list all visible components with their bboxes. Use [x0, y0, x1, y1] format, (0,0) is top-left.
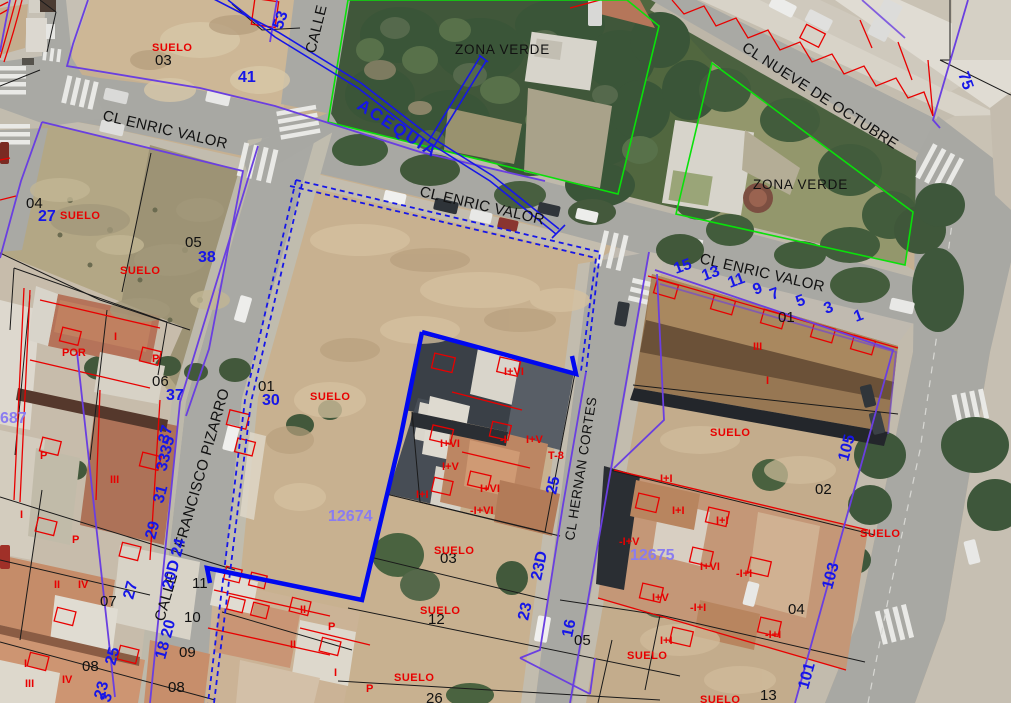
svg-text:-I+I: -I+I — [765, 629, 781, 641]
svg-text:SUELO: SUELO — [434, 545, 474, 557]
svg-text:SUELO: SUELO — [394, 672, 434, 684]
svg-text:ZONA VERDE: ZONA VERDE — [455, 42, 550, 57]
svg-text:I: I — [114, 331, 117, 343]
svg-text:I: I — [24, 658, 27, 670]
svg-text:16: 16 — [559, 618, 579, 639]
svg-text:I+VI: I+VI — [440, 438, 460, 450]
svg-text:SUELO: SUELO — [310, 391, 350, 403]
svg-text:ZONA VERDE: ZONA VERDE — [753, 177, 848, 192]
svg-text:III: III — [110, 474, 119, 486]
svg-text:13: 13 — [760, 687, 777, 703]
svg-text:IV: IV — [78, 579, 89, 591]
svg-text:37: 37 — [166, 387, 184, 404]
svg-text:II: II — [300, 604, 306, 616]
svg-text:P: P — [72, 534, 79, 546]
svg-text:POR: POR — [62, 347, 86, 359]
svg-text:II: II — [290, 639, 296, 651]
svg-text:27: 27 — [38, 208, 56, 225]
svg-text:SUELO: SUELO — [420, 605, 460, 617]
svg-text:T-8: T-8 — [548, 450, 564, 462]
svg-text:I+VI: I+VI — [480, 483, 500, 495]
svg-text:I+V: I+V — [526, 434, 543, 446]
svg-text:03: 03 — [155, 52, 172, 69]
svg-text:-I: -I — [500, 434, 507, 446]
svg-text:SUELO: SUELO — [60, 210, 100, 222]
svg-text:I: I — [20, 509, 23, 521]
svg-text:23: 23 — [515, 601, 535, 622]
svg-text:I+VI: I+VI — [504, 366, 524, 378]
svg-text:SUELO: SUELO — [710, 427, 750, 439]
svg-text:26: 26 — [426, 690, 443, 703]
svg-text:III: III — [753, 341, 762, 353]
svg-text:11: 11 — [192, 575, 208, 592]
svg-text:I+I: I+I — [672, 505, 685, 517]
svg-text:01: 01 — [778, 309, 795, 326]
svg-text:02: 02 — [815, 481, 832, 498]
svg-text:II: II — [54, 579, 60, 591]
svg-text:P: P — [366, 683, 373, 695]
svg-text:P: P — [152, 353, 159, 365]
svg-text:687: 687 — [0, 410, 27, 427]
svg-text:07: 07 — [100, 593, 117, 610]
svg-text:08: 08 — [168, 679, 185, 696]
svg-text:SUELO: SUELO — [627, 650, 667, 662]
svg-text:25: 25 — [543, 475, 563, 496]
svg-text:09: 09 — [179, 644, 196, 661]
svg-text:SUELO: SUELO — [700, 694, 740, 703]
svg-text:I+I: I+I — [416, 489, 429, 501]
svg-text:III: III — [25, 678, 34, 690]
svg-text:P: P — [40, 450, 47, 462]
svg-text:12675: 12675 — [630, 547, 675, 564]
svg-text:12674: 12674 — [328, 508, 373, 525]
svg-text:-I+I: -I+I — [736, 568, 752, 580]
svg-text:08: 08 — [82, 658, 99, 675]
svg-text:I+I: I+I — [716, 515, 729, 527]
svg-text:I+I: I+I — [660, 473, 673, 485]
svg-text:SUELO: SUELO — [152, 42, 192, 54]
svg-text:I+VI: I+VI — [700, 561, 720, 573]
svg-text:IV: IV — [62, 674, 73, 686]
svg-text:I+V: I+V — [652, 592, 669, 604]
svg-text:10: 10 — [184, 609, 201, 626]
svg-text:I: I — [334, 667, 337, 679]
svg-text:SUELO: SUELO — [860, 528, 900, 540]
svg-text:P: P — [328, 621, 335, 633]
svg-text:30: 30 — [262, 392, 280, 409]
svg-text:-I+I: -I+I — [690, 602, 706, 614]
svg-text:41: 41 — [238, 69, 256, 86]
svg-text:SUELO: SUELO — [120, 265, 160, 277]
svg-text:I+I: I+I — [660, 635, 673, 647]
svg-text:38: 38 — [198, 249, 216, 266]
svg-text:I+V: I+V — [442, 461, 459, 473]
svg-text:-I+VI: -I+VI — [470, 505, 494, 517]
svg-text:I: I — [766, 375, 769, 387]
svg-text:04: 04 — [788, 601, 805, 618]
